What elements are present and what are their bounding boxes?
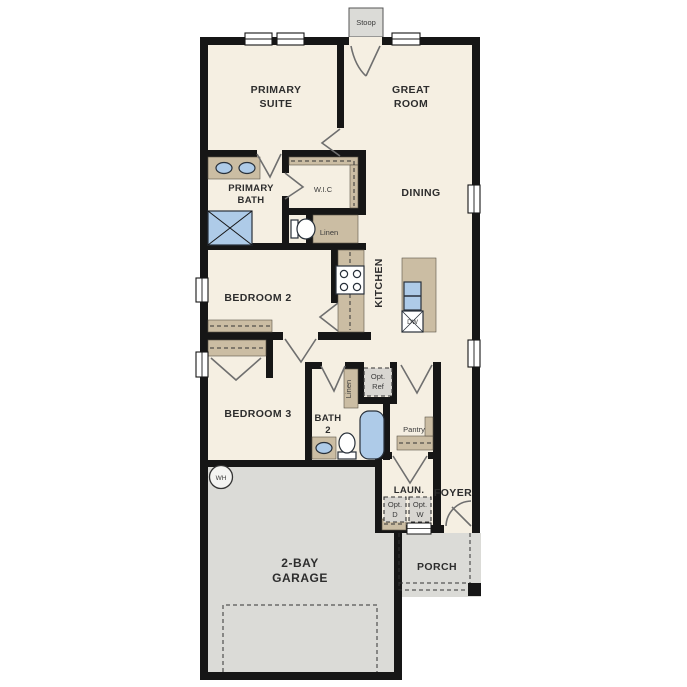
vanity-sink-left — [216, 163, 232, 174]
great-room-label-2: ROOM — [394, 98, 428, 110]
linen-bath-label: Linen — [344, 380, 353, 398]
bath2-toilet — [338, 433, 356, 459]
window-foyer — [468, 340, 480, 367]
window-primary-1 — [245, 33, 272, 45]
stove — [336, 266, 364, 294]
primary-suite-label-2: SUITE — [260, 98, 293, 110]
pantry-label: Pantry — [403, 425, 425, 434]
primary-suite-label-1: PRIMARY — [251, 84, 302, 96]
window-bedroom2 — [196, 278, 208, 302]
floor-plan: DW WH Opt. Ref Opt. D Opt. W — [0, 0, 687, 687]
window-dining — [468, 185, 480, 213]
vanity-sink-right — [239, 163, 255, 174]
garage-label-1: 2-BAY — [281, 556, 318, 570]
porch-label: PORCH — [417, 561, 457, 573]
window-great-room — [392, 33, 420, 45]
foyer-label: FOYER — [434, 487, 472, 499]
bath2-label-1: BATH — [315, 413, 342, 424]
front-door-gap — [349, 37, 382, 45]
shower — [208, 211, 252, 245]
floor-plan-page: DW WH Opt. Ref Opt. D Opt. W — [0, 0, 687, 687]
entry-door-gap — [444, 525, 472, 533]
opt-washer-label-2: W — [416, 510, 424, 519]
water-heater-label: WH — [216, 475, 227, 482]
bath2-label-2: 2 — [325, 425, 331, 436]
window-bedroom3 — [196, 352, 208, 377]
primary-toilet — [291, 219, 315, 239]
garage-label-2: GARAGE — [272, 571, 328, 585]
stoop-label: Stoop — [356, 18, 376, 27]
bathtub — [360, 411, 384, 459]
kitchen-label: KITCHEN — [373, 258, 385, 307]
wic-label: W.I.C — [314, 185, 333, 194]
opt-ref-label-1: Opt. — [371, 372, 385, 381]
opt-ref-label-2: Ref — [372, 382, 385, 391]
primary-bath-label-1: PRIMARY — [228, 183, 274, 194]
bedroom2-label: BEDROOM 2 — [224, 292, 291, 304]
water-heater: WH — [210, 466, 233, 489]
bath2-sink — [316, 443, 332, 454]
laundry-label: LAUN. — [394, 485, 425, 496]
opt-dryer-label-2: D — [392, 510, 398, 519]
linen-hall-label: Linen — [320, 228, 338, 237]
great-room-label-1: GREAT — [392, 84, 430, 96]
bedroom3-closet-shelf — [208, 340, 266, 356]
window-primary-2 — [277, 33, 304, 45]
opt-washer-label-1: Opt. — [413, 500, 427, 509]
porch-post — [468, 583, 481, 596]
dishwasher-label: DW — [407, 319, 419, 326]
primary-bath-label-2: BATH — [238, 195, 265, 206]
island-sink — [404, 282, 421, 310]
dining-label: DINING — [401, 187, 440, 199]
pantry-shelf-side — [425, 417, 433, 436]
dishwasher: DW — [402, 311, 423, 332]
garage-service-door — [407, 523, 431, 534]
opt-dryer-label-1: Opt. — [388, 500, 402, 509]
bedroom3-label: BEDROOM 3 — [224, 408, 291, 420]
